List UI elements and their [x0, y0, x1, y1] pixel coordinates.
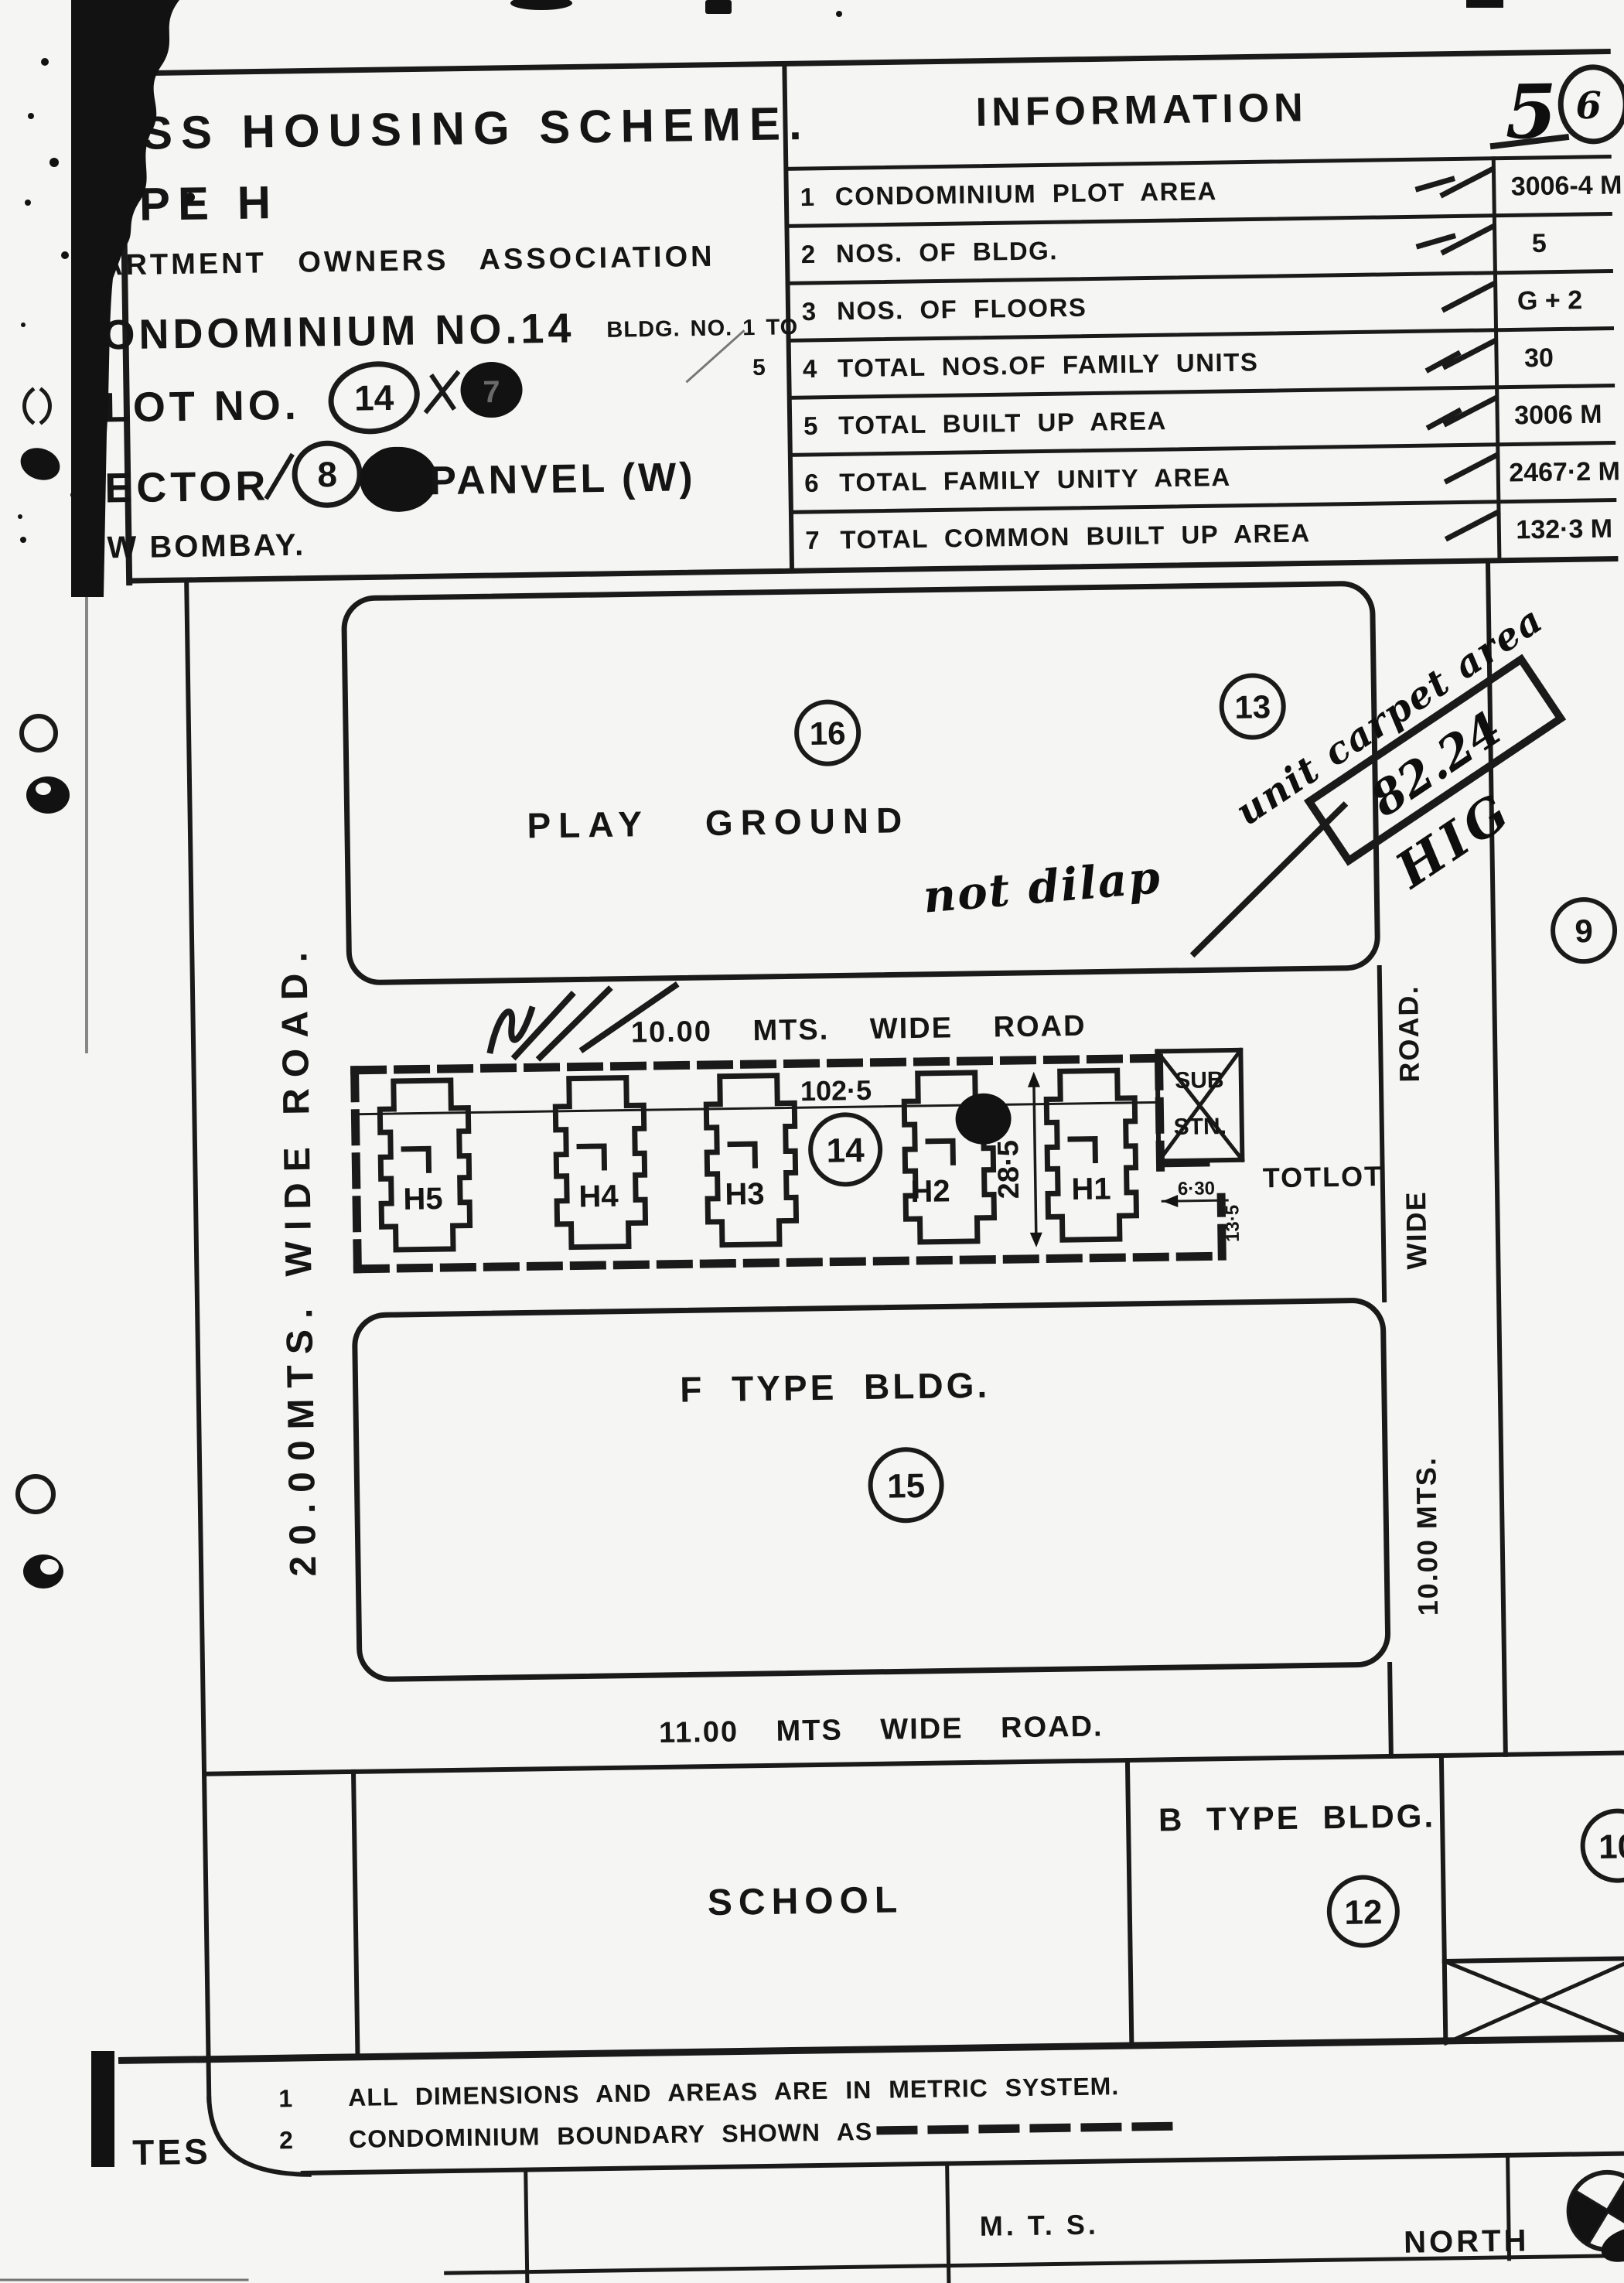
plot-10-no: 10	[1598, 1827, 1624, 1866]
bldg-h4-label: H4	[578, 1179, 619, 1214]
punch-hole-highlight	[36, 783, 51, 795]
punch-hole	[18, 1476, 53, 1512]
punch-hole	[22, 716, 56, 750]
top-edge-mark2	[705, 0, 732, 14]
note2-text: CONDOMINIUM BOUNDARY SHOWN AS	[349, 2117, 873, 2153]
road-right-label-road: ROAD.	[1392, 985, 1425, 1083]
handwritten-circle-no: 6	[1575, 84, 1602, 128]
row-value: 3006 M	[1514, 400, 1602, 431]
substation-sill	[1160, 1163, 1206, 1164]
x-mark-sector	[267, 456, 292, 497]
road-bottom-label: 11.00 MTS WIDE ROAD.	[659, 1710, 1104, 1749]
plot-9-no: 9	[1575, 913, 1593, 949]
substation-label1: SUB	[1175, 1067, 1224, 1094]
boundary-dash-sample	[881, 2126, 1169, 2131]
row-no: 3	[802, 297, 817, 326]
note1-text: ALL DIMENSIONS AND AREAS ARE IN METRIC S…	[348, 2072, 1119, 2111]
bottom-left-bar	[91, 2051, 114, 2167]
plot-12-no: 12	[1344, 1893, 1383, 1932]
scale-label: M. T. S.	[980, 2209, 1100, 2242]
road-right-label-mts: 10.00 MTS.	[1410, 1456, 1444, 1616]
substation-label2: STN.	[1173, 1114, 1227, 1140]
row-value: 2467·2 M	[1509, 456, 1620, 487]
row-label: TOTAL COMMON BUILT UP AREA	[840, 518, 1311, 554]
bldg-h5-label: H5	[403, 1182, 443, 1217]
scheme-title: ASS HOUSING SCHEME.	[99, 97, 810, 160]
bldg-h1-label: H1	[1071, 1172, 1111, 1206]
bldg-h2-label: H2	[910, 1174, 950, 1209]
row-label: TOTAL FAMILY UNITY AREA	[839, 462, 1231, 497]
totlot-label: TOTLOT	[1262, 1160, 1383, 1193]
row-label: CONDOMINIUM PLOT AREA	[835, 176, 1217, 210]
site-plan-drawing: ASS HOUSING SCHEME. YPE H ARTMENT OWNERS…	[0, 0, 1624, 2283]
arrow-left	[1162, 1195, 1178, 1207]
punch-holes	[16, 390, 70, 1589]
school-band-top	[206, 1752, 1624, 1773]
b-type-label: B TYPE BLDG.	[1158, 1797, 1436, 1838]
row-no: 7	[805, 526, 820, 555]
notes-heading: TES	[132, 2131, 211, 2172]
sector-place: PANVEL (W)	[429, 455, 696, 503]
city-line: W BOMBAY.	[107, 528, 305, 565]
plot-no: 14	[354, 377, 394, 418]
playground-label: PLAY GROUND	[527, 800, 910, 845]
row-label: NOS. OF FLOORS	[837, 293, 1087, 326]
row-no: 4	[803, 354, 818, 383]
bldg-no-line: BLDG. NO. 1 TO	[606, 315, 798, 343]
punch-hole	[26, 776, 70, 814]
road-left-label: 20.00MTS. WIDE ROAD.	[274, 941, 324, 1577]
note2-no: 2	[279, 2126, 293, 2154]
plot-13-no: 13	[1234, 688, 1271, 725]
row-label: TOTAL NOS.OF FAMILY UNITS	[838, 347, 1259, 382]
arrow-up	[1028, 1072, 1040, 1087]
left-road-line	[186, 582, 209, 2100]
notes-band: TES 1 ALL DIMENSIONS AND AREAS ARE IN ME…	[131, 2064, 1624, 2177]
row-value: 5	[1532, 229, 1547, 258]
note1-no: 1	[278, 2084, 292, 2112]
plot-label: LOT NO.	[103, 382, 300, 432]
school-label: SCHOOL	[708, 1879, 904, 1923]
row-value: 30	[1524, 343, 1554, 374]
sub-dim-label: 6·30	[1178, 1178, 1215, 1200]
depth-dim-label: 28·5	[992, 1140, 1025, 1200]
row-label: NOS. OF BLDG.	[836, 236, 1059, 268]
title-block: ASS HOUSING SCHEME. YPE H ARTMENT OWNERS…	[99, 97, 817, 565]
punch-hole	[25, 390, 50, 422]
punch-hole-highlight	[40, 1559, 59, 1575]
bottom-band: M. T. S. NORTH	[445, 2153, 1624, 2283]
bldg-h3-label: H3	[725, 1177, 765, 1212]
width-dim-label: 102·5	[800, 1074, 872, 1107]
plot-no-alt: 7	[483, 375, 500, 409]
condominium-line: ONDOMINIUM NO.14	[102, 305, 575, 358]
row-no: 6	[804, 469, 819, 497]
road-right-label-wide: WIDE	[1400, 1190, 1433, 1270]
dilap-note: not dilap	[921, 851, 1163, 923]
notes-left-curve	[209, 2097, 309, 2176]
tot-dim-label: 13·5	[1222, 1205, 1244, 1242]
x-box-top	[1445, 1958, 1624, 1961]
handwritten-ticks	[1418, 169, 1497, 538]
row-no: 5	[803, 411, 818, 440]
bldg-no-end: 5	[752, 355, 766, 380]
top-edge-mark	[510, 0, 572, 10]
sector-label: ECTOR	[104, 462, 270, 511]
punch-hole	[16, 442, 65, 485]
row-no: 1	[800, 183, 814, 211]
road-top-label: 10.00 MTS. WIDE ROAD	[631, 1010, 1087, 1049]
x-box-diagonals	[1445, 1958, 1624, 2043]
plan-area: 16 PLAY GROUND 13 9 10.00 MTS. WIDE ROAD	[100, 560, 1624, 2101]
association-line: ARTMENT OWNERS ASSOCIATION	[101, 241, 715, 282]
information-title: INFORMATION	[975, 85, 1308, 135]
plot-15-no: 15	[887, 1467, 926, 1506]
width-dim-line	[357, 1102, 1156, 1114]
notes-bottom-line	[303, 2153, 1624, 2173]
row-value: G + 2	[1517, 285, 1583, 316]
sector-no: 8	[317, 454, 337, 494]
plot-16-no: 16	[809, 715, 845, 752]
ink-blob-plan	[955, 1093, 1012, 1145]
row-value: 132·3 M	[1516, 514, 1612, 545]
scanned-site-plan-page: ASS HOUSING SCHEME. YPE H ARTMENT OWNERS…	[0, 0, 1624, 2283]
north-label: NORTH	[1404, 2223, 1530, 2259]
top-edge-mark3	[1466, 0, 1503, 8]
x-mark	[426, 374, 458, 411]
f-type-label: F TYPE BLDG.	[680, 1365, 991, 1410]
row-label: TOTAL BUILT UP AREA	[838, 406, 1167, 439]
north-compass-icon	[1554, 2157, 1624, 2269]
substation-x	[1157, 1050, 1242, 1162]
row-value: 3006-4 M	[1511, 170, 1622, 201]
row-no: 2	[801, 240, 816, 268]
school-band-bottom	[122, 2038, 1624, 2060]
carpet-annotation: unit carpet area 82.24 HIG	[1228, 598, 1624, 957]
arrow-down	[1030, 1233, 1042, 1247]
sheet: ASS HOUSING SCHEME. YPE H ARTMENT OWNERS…	[92, 51, 1624, 2283]
plot-14-no: 14	[826, 1131, 865, 1170]
